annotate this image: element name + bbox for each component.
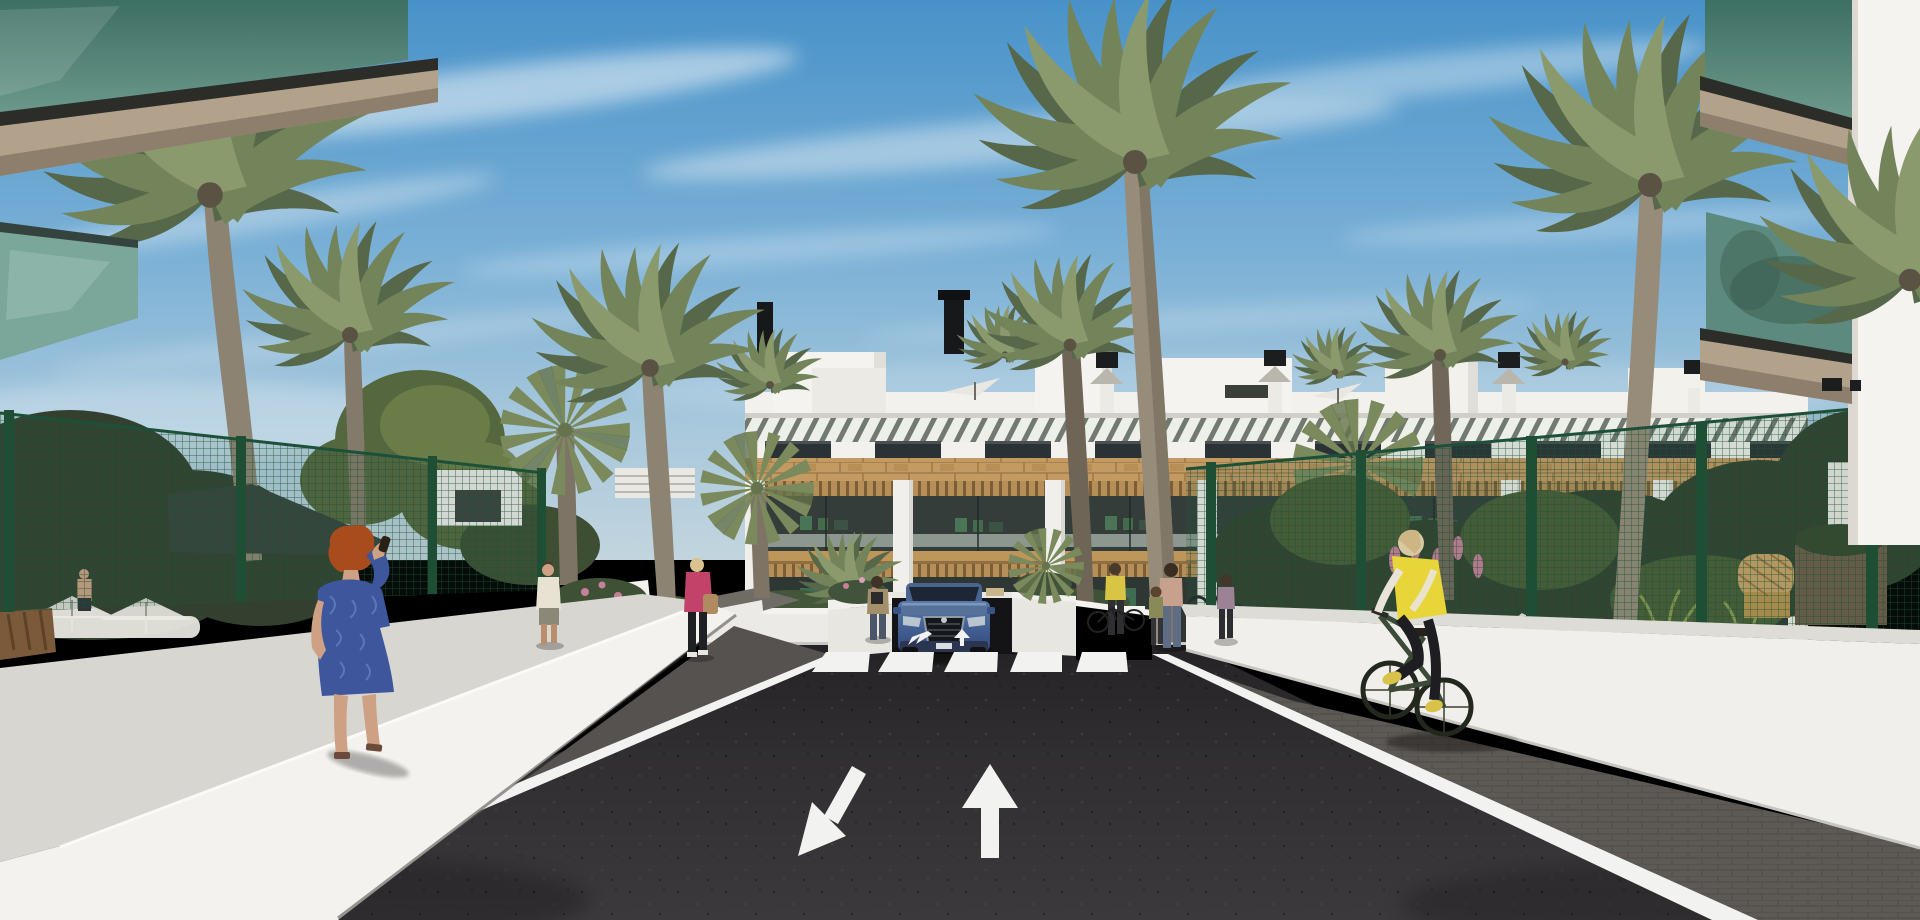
cyclist-vest [1392, 556, 1447, 621]
red-hair [328, 525, 375, 572]
architectural-render [0, 0, 1920, 920]
suv-car [890, 583, 998, 664]
handbag [703, 594, 718, 614]
render-canvas [0, 0, 1920, 920]
blue-dress [317, 580, 394, 697]
